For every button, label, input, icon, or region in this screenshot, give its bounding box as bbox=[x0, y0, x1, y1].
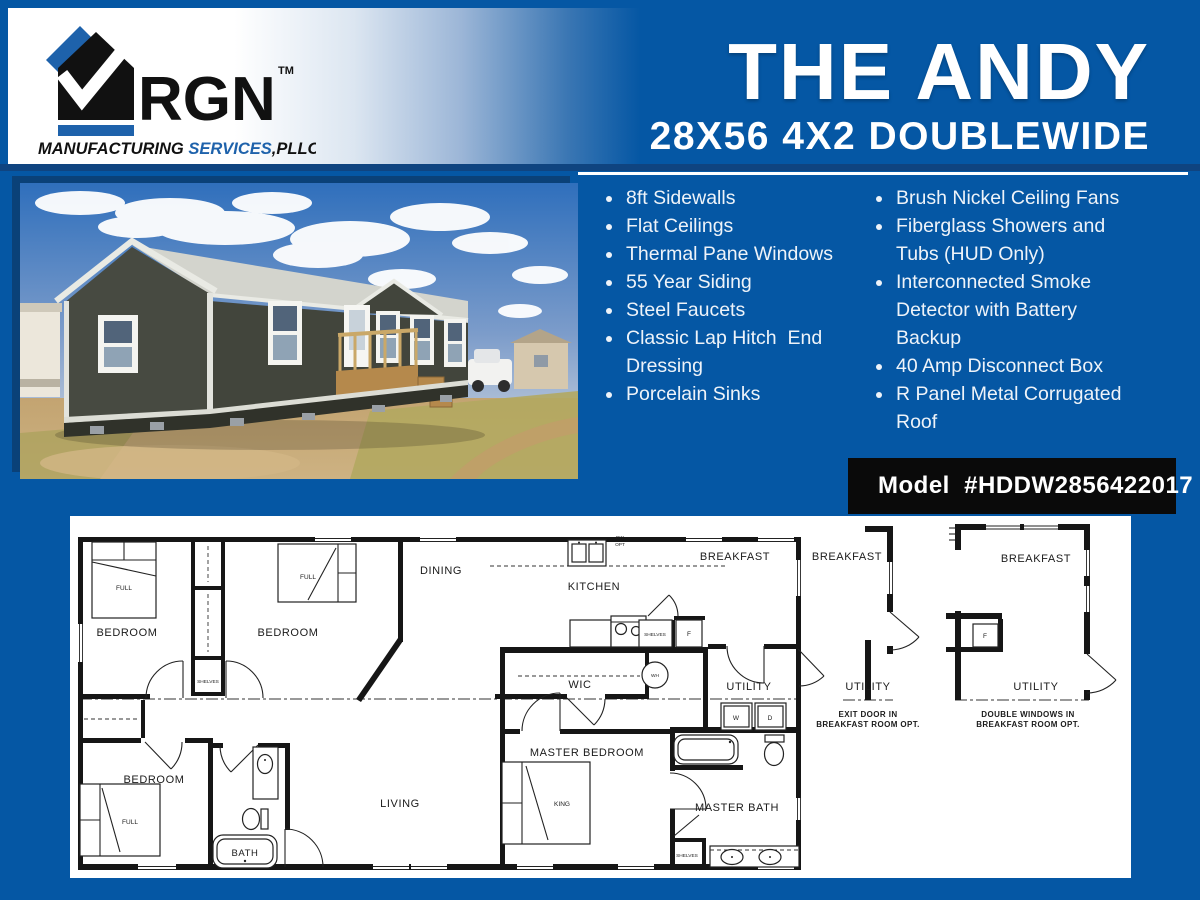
option2-utility-label: UTILITY bbox=[1013, 681, 1058, 693]
option-double-windows: F BREAKFAST UTILITY DOUBLE WINDOWS IN BR… bbox=[946, 524, 1116, 730]
room-label-living: LIVING bbox=[380, 798, 420, 810]
rgn-logo-graphic: RGN TM MANUFACTURING SERVICES,PLLC bbox=[16, 14, 316, 160]
window-side bbox=[77, 560, 803, 820]
page-title: THE ANDY bbox=[650, 32, 1150, 112]
option1-utility-label: UTILITY bbox=[845, 681, 890, 693]
option2-caption-line2: BREAKFAST ROOM OPT. bbox=[976, 720, 1080, 729]
room-label-utility: UTILITY bbox=[726, 681, 771, 693]
option1-caption-line1: EXIT DOOR IN bbox=[838, 710, 897, 719]
model-number-text: Model #HDDW2856422017 bbox=[848, 472, 1193, 499]
feature-item: 40 Amp Disconnect Box bbox=[894, 352, 1130, 380]
logo-tagline: MANUFACTURING SERVICES,PLLC bbox=[38, 140, 316, 158]
room-label-master-bath: MASTER BATH bbox=[695, 802, 779, 814]
room-label-kitchen: KITCHEN bbox=[568, 581, 620, 593]
rgn-house-icon bbox=[46, 26, 134, 136]
master-bath-fixtures bbox=[674, 735, 799, 867]
svg-text:KING: KING bbox=[554, 801, 570, 808]
room-label-bedroom-3: BEDROOM bbox=[123, 774, 184, 786]
neighbor-home-left bbox=[20, 303, 62, 397]
home-exterior-illustration bbox=[20, 183, 578, 479]
shelves-label-master-bath: SHELVES bbox=[676, 853, 698, 859]
title-underline bbox=[578, 172, 1188, 175]
fridge-label: F bbox=[687, 631, 691, 638]
room-label-dining: DINING bbox=[420, 565, 462, 577]
svg-text:FULL: FULL bbox=[116, 585, 132, 592]
room-label-bath: BATH bbox=[231, 848, 258, 859]
floorplan-drawing: FULL FULL FULL KING bbox=[70, 516, 1131, 878]
feature-list-left: 8ft Sidewalls Flat Ceilings Thermal Pane… bbox=[604, 184, 874, 408]
feature-item: Brush Nickel Ceiling Fans bbox=[894, 184, 1130, 212]
feature-list-right: Brush Nickel Ceiling Fans Fiberglass Sho… bbox=[874, 184, 1130, 436]
room-labels: BEDROOM BEDROOM BEDROOM DINING KITCHEN B… bbox=[96, 551, 779, 859]
svg-text:FULL: FULL bbox=[122, 819, 138, 826]
water-heater-label: WH bbox=[651, 673, 660, 679]
kitchen-fixtures bbox=[490, 540, 728, 688]
shelves-label-hall: SHELVES bbox=[197, 679, 219, 685]
logo-brand-text: RGN bbox=[138, 65, 276, 134]
bed-king: KING bbox=[502, 762, 590, 844]
feature-item: Steel Faucets bbox=[624, 296, 874, 324]
option-exit-door: BREAKFAST UTILITY EXIT DOOR IN BREAKFAST… bbox=[812, 526, 920, 729]
home-exterior-photo bbox=[20, 183, 578, 479]
option2-fridge-label: F bbox=[983, 633, 987, 640]
option2-caption-line1: DOUBLE WINDOWS IN bbox=[981, 710, 1074, 719]
bed-full-3: FULL bbox=[80, 784, 160, 856]
feature-item: Fiberglass Showers and Tubs (HUD Only) bbox=[894, 212, 1130, 268]
feature-item: Interconnected Smoke Detector with Batte… bbox=[894, 268, 1130, 352]
option1-breakfast-label: BREAKFAST bbox=[812, 551, 882, 563]
room-label-wic: WIC bbox=[568, 679, 591, 691]
logo-tm: TM bbox=[278, 65, 294, 77]
svg-text:FULL: FULL bbox=[300, 574, 316, 581]
room-label-master-bedroom: MASTER BEDROOM bbox=[530, 747, 644, 759]
feature-item: 8ft Sidewalls bbox=[624, 184, 874, 212]
room-label-bedroom-2: BEDROOM bbox=[257, 627, 318, 639]
header-divider bbox=[0, 164, 1200, 171]
floorplan-panel: FULL FULL FULL KING bbox=[70, 516, 1131, 878]
feature-item: Porcelain Sinks bbox=[624, 380, 874, 408]
dryer-label: D bbox=[768, 715, 773, 722]
company-logo: RGN TM MANUFACTURING SERVICES,PLLC bbox=[16, 14, 316, 160]
feature-item: Classic Lap Hitch End Dressing bbox=[624, 324, 874, 380]
bed-full-1: FULL bbox=[92, 542, 156, 618]
dw-opt-label: OPT bbox=[615, 542, 625, 548]
bed-full-2: FULL bbox=[278, 544, 356, 602]
feature-item: Thermal Pane Windows bbox=[624, 240, 874, 268]
room-label-bedroom-1: BEDROOM bbox=[96, 627, 157, 639]
dw-label: DW bbox=[616, 535, 624, 541]
page-subtitle: 28X56 4X2 DOUBLEWIDE bbox=[650, 116, 1150, 159]
model-number-badge: Model #HDDW2856422017 bbox=[848, 458, 1176, 514]
title-block: THE ANDY 28X56 4X2 DOUBLEWIDE bbox=[650, 32, 1150, 159]
feature-item: Flat Ceilings bbox=[624, 212, 874, 240]
feature-item: R Panel Metal Corrugated Roof bbox=[894, 380, 1130, 436]
windows bbox=[77, 536, 803, 872]
option2-breakfast-label: BREAKFAST bbox=[1001, 553, 1071, 565]
room-label-breakfast: BREAKFAST bbox=[700, 551, 770, 563]
feature-item: 55 Year Siding bbox=[624, 268, 874, 296]
washer-label: W bbox=[733, 715, 740, 722]
marriage-lines bbox=[80, 699, 1089, 700]
flyer-page: { "colors": { "background": "#0557a4", "… bbox=[0, 0, 1200, 900]
utility-appliances bbox=[721, 703, 786, 730]
shelves-label-kitchen: SHELVES bbox=[644, 632, 666, 638]
gable-window bbox=[98, 315, 138, 373]
option1-caption-line2: BREAKFAST ROOM OPT. bbox=[816, 720, 920, 729]
